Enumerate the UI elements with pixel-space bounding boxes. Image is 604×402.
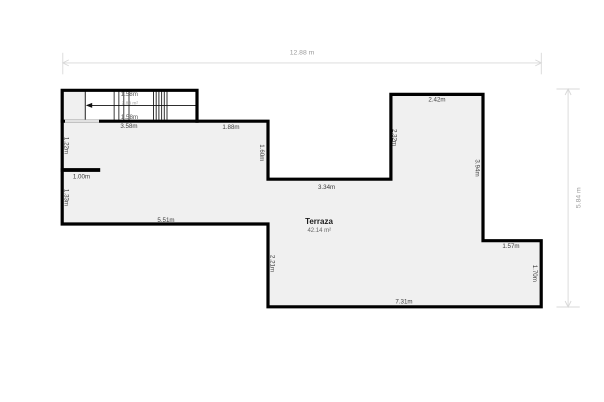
svg-text:1.00m: 1.00m	[73, 174, 90, 181]
svg-text:5.84 m: 5.84 m	[575, 187, 582, 208]
svg-text:5.51m: 5.51m	[157, 217, 174, 224]
svg-text:7.31m: 7.31m	[395, 299, 412, 306]
svg-text:3.94m: 3.94m	[474, 159, 481, 176]
svg-text:1.70m: 1.70m	[531, 265, 538, 282]
svg-text:2.32m: 2.32m	[391, 129, 398, 146]
svg-text:1.60m: 1.60m	[258, 144, 265, 161]
svg-text:42.14 m²: 42.14 m²	[307, 228, 331, 234]
svg-text:1.57m: 1.57m	[502, 243, 519, 250]
svg-text:2.42m: 2.42m	[428, 97, 445, 104]
svg-text:3.34m: 3.34m	[318, 184, 335, 191]
svg-text:1.22m: 1.22m	[63, 137, 70, 154]
svg-text:1.33m: 1.33m	[63, 189, 70, 206]
svg-text:1.88m: 1.88m	[222, 124, 239, 131]
svg-text:2.21m: 2.21m	[268, 255, 275, 272]
svg-text:3.58m: 3.58m	[120, 123, 137, 130]
svg-text:Terraza: Terraza	[305, 217, 333, 226]
svg-text:12.88 m: 12.88 m	[290, 50, 315, 57]
